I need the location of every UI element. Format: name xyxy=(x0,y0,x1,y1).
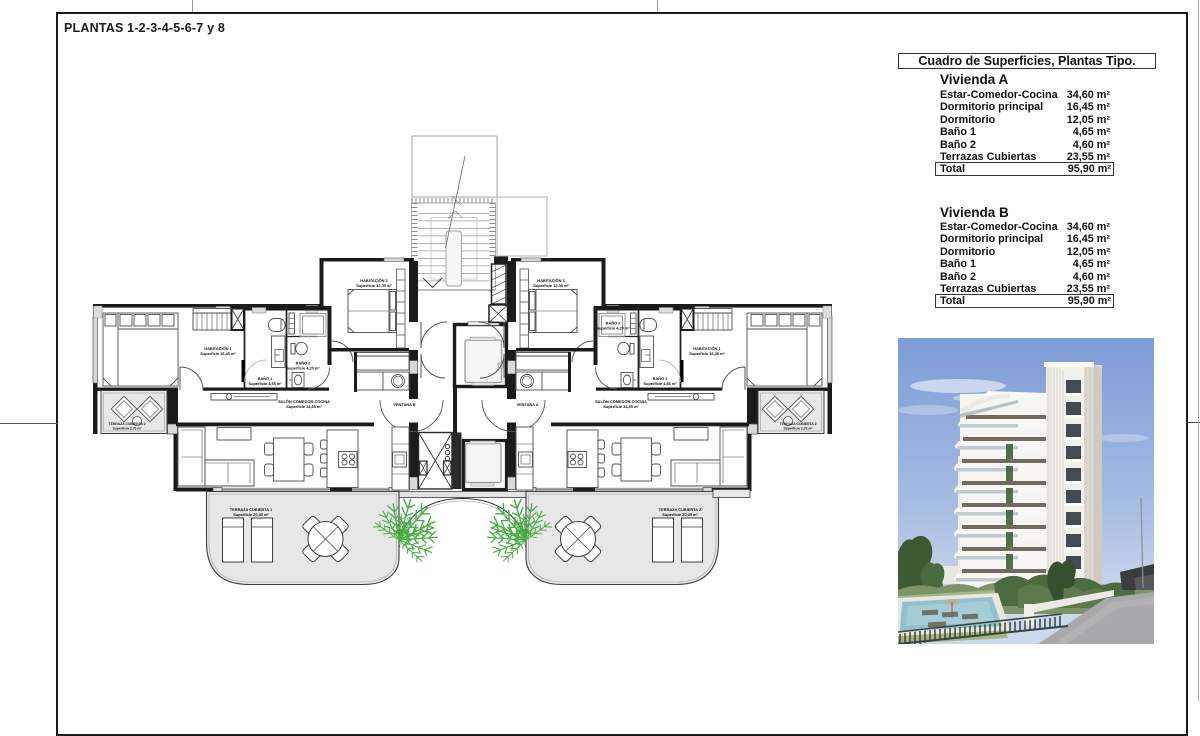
svg-text:Superficie 16,45 m²: Superficie 16,45 m² xyxy=(689,351,725,356)
svg-text:Superficie 4,65 m²: Superficie 4,65 m² xyxy=(248,381,282,386)
svg-text:Superficie 12,05 m²: Superficie 12,05 m² xyxy=(533,283,569,288)
svg-text:Superficie 4,65 m²: Superficie 4,65 m² xyxy=(643,381,677,386)
svg-text:Superficie 2,75 m²: Superficie 2,75 m² xyxy=(783,427,813,431)
svg-text:Superficie 2,75 m²: Superficie 2,75 m² xyxy=(112,427,142,431)
svg-text:Superficie 4,20 m²: Superficie 4,20 m² xyxy=(596,326,630,331)
svg-text:VENTANA A: VENTANA A xyxy=(516,402,538,407)
svg-text:Superficie 34,60 m²: Superficie 34,60 m² xyxy=(603,404,639,409)
svg-text:VENTANA B: VENTANA B xyxy=(393,402,415,407)
svg-text:TERRAZA CUBIERTA 2: TERRAZA CUBIERTA 2 xyxy=(780,422,817,426)
svg-text:Superficie 20,40 m²: Superficie 20,40 m² xyxy=(233,512,269,517)
svg-text:Superficie 4,20 m²: Superficie 4,20 m² xyxy=(286,366,320,371)
svg-text:Superficie 16,45 m²: Superficie 16,45 m² xyxy=(200,351,236,356)
svg-text:Superficie 12,00 m²: Superficie 12,00 m² xyxy=(356,283,392,288)
svg-text:Superficie 20,40 m²: Superficie 20,40 m² xyxy=(662,512,698,517)
svg-text:TERRAZA CUBIERTA 2: TERRAZA CUBIERTA 2 xyxy=(109,422,146,426)
svg-text:Superficie 34,60 m²: Superficie 34,60 m² xyxy=(286,404,322,409)
